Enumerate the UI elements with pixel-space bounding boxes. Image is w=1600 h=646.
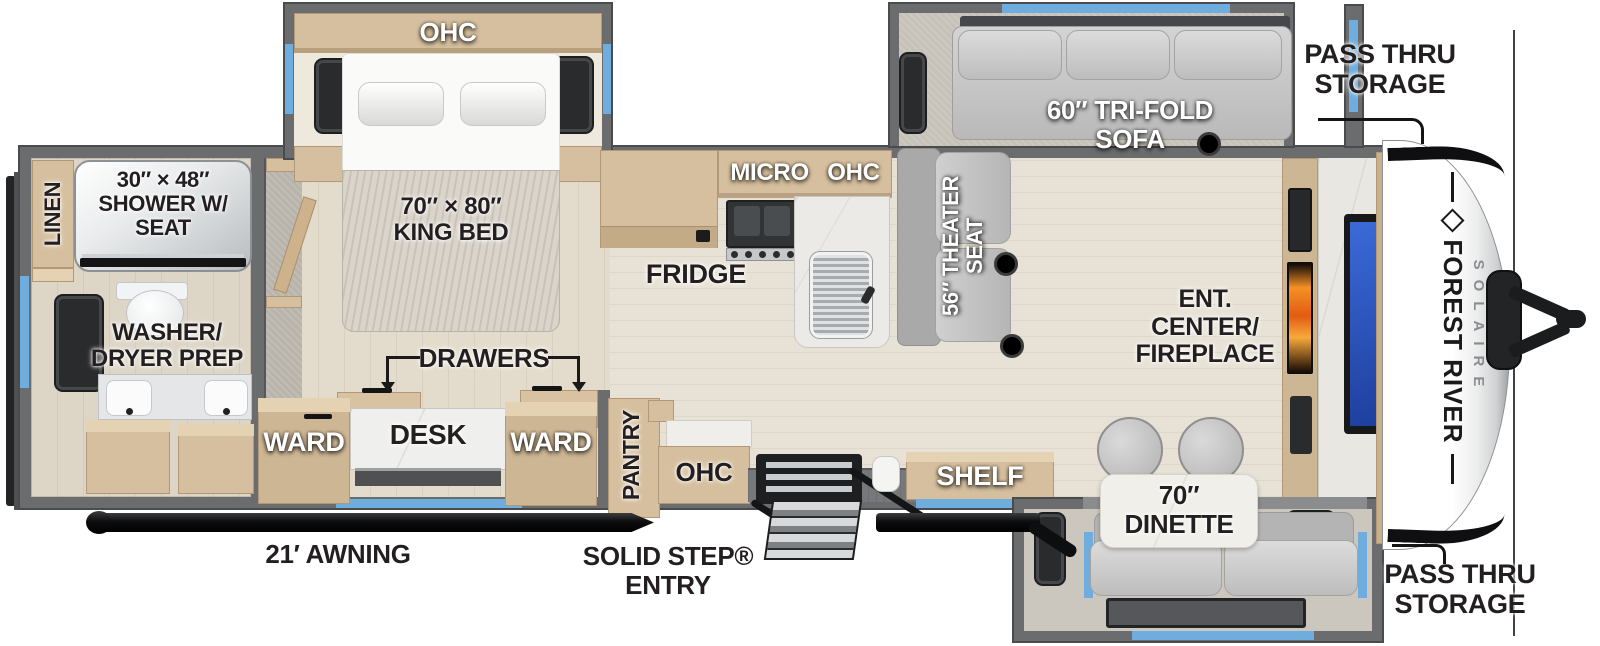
entry-grab-handle: [872, 456, 900, 492]
range-grate: [734, 206, 760, 236]
drawers-arrow-left-head: [381, 382, 395, 392]
step-tread-3: [766, 486, 852, 492]
shower-label: 30″ × 48″ SHOWER W/ SEAT: [84, 168, 242, 241]
brand-block: SOLAIRE FOREST RIVER: [1430, 168, 1494, 488]
step-tread-2: [766, 474, 852, 480]
range-knob-2: [745, 251, 752, 258]
bedroom-ohc-label: OHC: [294, 18, 602, 47]
step-tread-1: [766, 462, 852, 468]
ent-center-label: ENT. CENTER/ FIREPLACE: [1125, 286, 1285, 369]
ward-left-top: [258, 398, 350, 412]
theater-label-wrap: 56″ THEATER SEAT: [937, 146, 989, 346]
brand-forest-river: FOREST RIVER: [1437, 239, 1468, 443]
theater-cupholder-2: [1000, 334, 1024, 358]
sofa-cushion-2: [1066, 30, 1170, 80]
awning-label: 21′ AWNING: [258, 540, 418, 569]
range-knob-5: [787, 251, 794, 258]
tv-screen: [1350, 222, 1378, 426]
dinette-table: [1106, 598, 1306, 628]
ward-right-label: WARD: [505, 428, 597, 458]
ent-lower-cubby: [1290, 396, 1312, 454]
entry-ohc-label: OHC: [658, 458, 750, 487]
nightstand-left: [294, 146, 346, 182]
ward-handle-left: [304, 414, 332, 419]
vanity-cabinet-right-top: [178, 424, 254, 436]
ent-upper-cubby: [1288, 188, 1312, 252]
awning-bar-right: [876, 513, 1040, 532]
linen-label: LINEN: [41, 182, 65, 247]
drawers-arrow-left-v: [386, 356, 389, 382]
front-cap-band-bottom: [1387, 508, 1504, 546]
vanity-cabinet-left-top: [86, 420, 170, 432]
pass-thru-top-pointer: [1318, 118, 1424, 144]
rear-wall-window: [20, 276, 29, 388]
drawers-label: DRAWERS: [418, 344, 550, 373]
drawers-arrow-right-v: [577, 356, 580, 382]
brand-rule-left: [1451, 172, 1454, 202]
pass-thru-top-label: PASS THRU STORAGE: [1300, 40, 1460, 99]
exterior-steps: [764, 500, 862, 560]
entry-counter: [666, 420, 752, 448]
bedroom-slide-window-strip-right: [603, 44, 611, 114]
awning-end-cap: [86, 511, 112, 534]
solid-step-label: SOLID STEP® ENTRY: [573, 542, 763, 599]
sofa-cushion-1: [958, 30, 1062, 80]
pillow-left: [358, 82, 444, 126]
shelf-label: SHELF: [906, 462, 1054, 492]
entry-cabinet-step: [648, 400, 674, 422]
dinette-window-strip-right: [1358, 532, 1367, 598]
pantry-label-wrap: PANTRY: [614, 385, 650, 525]
range-knob-3: [759, 251, 766, 258]
dinette-seat-1: [1090, 540, 1222, 596]
trifold-sofa-label: 60″ TRI-FOLD SOFA: [1010, 96, 1250, 153]
washer-dryer-label: WASHER/ DRYER PREP: [82, 320, 252, 373]
ward-right-top: [505, 402, 597, 416]
drawers-arrow-right-h: [548, 356, 580, 359]
faucet-right: [223, 408, 230, 415]
pillow-right: [460, 82, 546, 126]
fridge-handle: [696, 230, 710, 242]
micro-ohc-label: MICRO OHC: [718, 160, 892, 186]
drawers-arrow-right-head: [572, 382, 586, 392]
bottom-window-bedroom: [336, 499, 522, 508]
desk-label: DESK: [350, 420, 506, 451]
drawers-arrow-left-h: [386, 356, 420, 359]
closet-shelf-mid: [266, 296, 302, 308]
pass-thru-bottom-pointer: [1392, 544, 1446, 564]
dinette-label-card: 70″ DINETTE: [1100, 474, 1258, 548]
brand-forest-river-row: FOREST RIVER: [1437, 172, 1468, 483]
sofa-slide-window-left: [901, 54, 925, 132]
dinette-window-strip-bottom: [1132, 631, 1314, 640]
fridge-label: FRIDGE: [636, 260, 756, 290]
brand-solaire-row: SOLAIRE: [1470, 260, 1487, 397]
fireplace: [1287, 262, 1313, 374]
pass-thru-bottom-label: PASS THRU STORAGE: [1380, 560, 1540, 619]
brand-rule-right: [1451, 454, 1454, 484]
range-knob-4: [773, 251, 780, 258]
hitch-tongue: [1556, 310, 1586, 328]
range-grate-2: [764, 206, 790, 236]
ward-left-label: WARD: [258, 428, 350, 458]
faucet-left: [126, 408, 133, 415]
awning-bar-left: [90, 513, 654, 532]
range-knob-1: [731, 251, 738, 258]
forest-river-logo-icon: [1440, 209, 1464, 233]
king-bed-label: 70″ × 80″ KING BED: [360, 194, 542, 247]
desk-base: [355, 468, 501, 486]
theater-cupholder-1: [994, 252, 1018, 276]
bedroom-slide-window-strip-left: [285, 44, 293, 114]
rv-floorplan: LINEN 30″ × 48″ SHOWER W/ SEAT WASHER/ D…: [0, 0, 1600, 646]
dinette-seat-2: [1224, 540, 1358, 596]
shower-door: [80, 258, 246, 267]
drawer-handle-right: [532, 386, 562, 391]
sofa-slide-window-strip: [1002, 4, 1230, 13]
linen-label-wrap: LINEN: [35, 144, 71, 284]
pantry-label: PANTRY: [619, 410, 644, 500]
sofa-cushion-3: [1174, 30, 1282, 80]
